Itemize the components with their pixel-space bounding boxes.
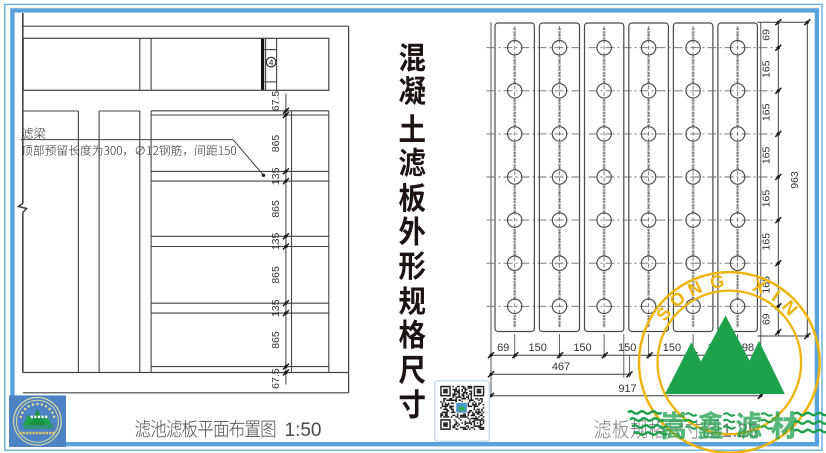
svg-text:467: 467	[552, 361, 570, 373]
svg-text:150: 150	[529, 342, 547, 354]
svg-text:963: 963	[789, 171, 801, 189]
svg-text:135: 135	[270, 299, 282, 317]
svg-text:865: 865	[270, 266, 282, 284]
svg-text:69: 69	[761, 29, 773, 41]
svg-text:67.5: 67.5	[270, 91, 282, 112]
svg-text:150: 150	[573, 342, 591, 354]
svg-text:150: 150	[618, 342, 636, 354]
svg-text:69: 69	[497, 342, 509, 354]
svg-text:917: 917	[618, 383, 636, 395]
svg-text:69: 69	[761, 313, 773, 325]
svg-text:165: 165	[761, 146, 773, 164]
svg-text:135: 135	[270, 167, 282, 185]
svg-text:165: 165	[761, 190, 773, 208]
svg-text:N: N	[778, 296, 802, 319]
svg-text:165: 165	[761, 60, 773, 78]
svg-text:135: 135	[270, 232, 282, 250]
svg-text:865: 865	[270, 200, 282, 218]
svg-text:865: 865	[270, 135, 282, 153]
svg-text:4: 4	[269, 57, 274, 67]
svg-text:67.5: 67.5	[270, 368, 282, 389]
svg-text:1:50: 1:50	[285, 420, 322, 441]
svg-text:865: 865	[270, 331, 282, 349]
svg-text:165: 165	[761, 233, 773, 251]
svg-text:165: 165	[761, 103, 773, 121]
svg-text:G: G	[709, 271, 726, 293]
svg-text:150: 150	[663, 342, 681, 354]
